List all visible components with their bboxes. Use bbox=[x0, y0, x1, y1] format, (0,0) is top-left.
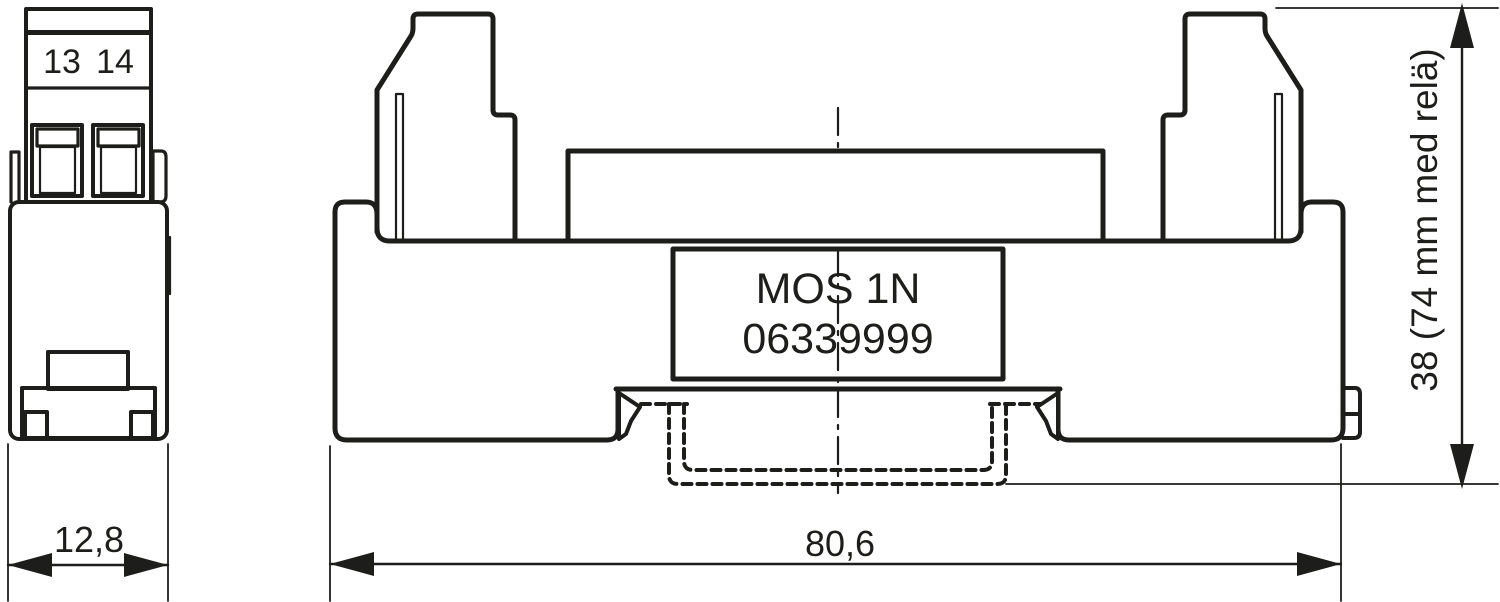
relay-socket-dimension-drawing: 13 14 bbox=[0, 0, 1500, 602]
side-view: 13 14 bbox=[10, 9, 170, 439]
foot-pad-left bbox=[25, 412, 47, 438]
terminal-clamp bbox=[37, 129, 78, 146]
rail-claw-left bbox=[619, 393, 640, 439]
terminal-window-1 bbox=[32, 125, 82, 196]
side-flange-right bbox=[153, 151, 166, 202]
arrowhead-left bbox=[8, 553, 52, 577]
side-latch-tab bbox=[1343, 388, 1360, 438]
foot-pad-right bbox=[131, 412, 153, 438]
product-name: MOS 1N bbox=[756, 265, 921, 313]
arrowhead-left bbox=[330, 552, 374, 576]
arrowhead-up bbox=[1450, 3, 1474, 48]
terminal-number-13: 13 bbox=[43, 43, 81, 81]
side-flange-left bbox=[11, 152, 19, 202]
dimension-front-width: 80,6 bbox=[330, 444, 1341, 601]
terminal-cavity bbox=[101, 147, 136, 193]
dimension-height: 38 (74 mm med relä) bbox=[1006, 3, 1498, 489]
relay-seat-block bbox=[568, 151, 1103, 241]
side-top-cap bbox=[26, 9, 151, 33]
release-tower-right-slot bbox=[1275, 94, 1282, 239]
dimensions: 12,8 80,6 38 (74 mm med relä) bbox=[8, 3, 1498, 601]
arrowhead-right bbox=[1297, 552, 1341, 576]
dimension-value-side-width: 12,8 bbox=[54, 519, 124, 560]
dimension-side-width: 12,8 bbox=[8, 444, 168, 601]
dimension-value-height: 38 (74 mm med relä) bbox=[1404, 48, 1445, 391]
product-number: 06339999 bbox=[742, 315, 933, 363]
foot-upper-block bbox=[48, 352, 128, 389]
release-tower-left bbox=[377, 14, 515, 241]
dimension-value-front-width: 80,6 bbox=[805, 523, 875, 564]
arrowhead-down bbox=[1450, 444, 1474, 489]
side-body bbox=[10, 202, 167, 439]
rail-claw-right bbox=[1037, 393, 1058, 439]
arrowhead-right bbox=[124, 553, 168, 577]
terminal-cavity bbox=[40, 147, 75, 193]
release-tower-left-slot bbox=[396, 94, 403, 239]
release-tower-right bbox=[1163, 14, 1301, 241]
technical-drawing-page: 13 14 bbox=[0, 0, 1500, 602]
terminal-window-2 bbox=[93, 125, 143, 196]
front-view: MOS 1N 06339999 bbox=[335, 14, 1360, 493]
terminal-number-14: 14 bbox=[96, 43, 134, 81]
terminal-clamp bbox=[98, 129, 139, 146]
